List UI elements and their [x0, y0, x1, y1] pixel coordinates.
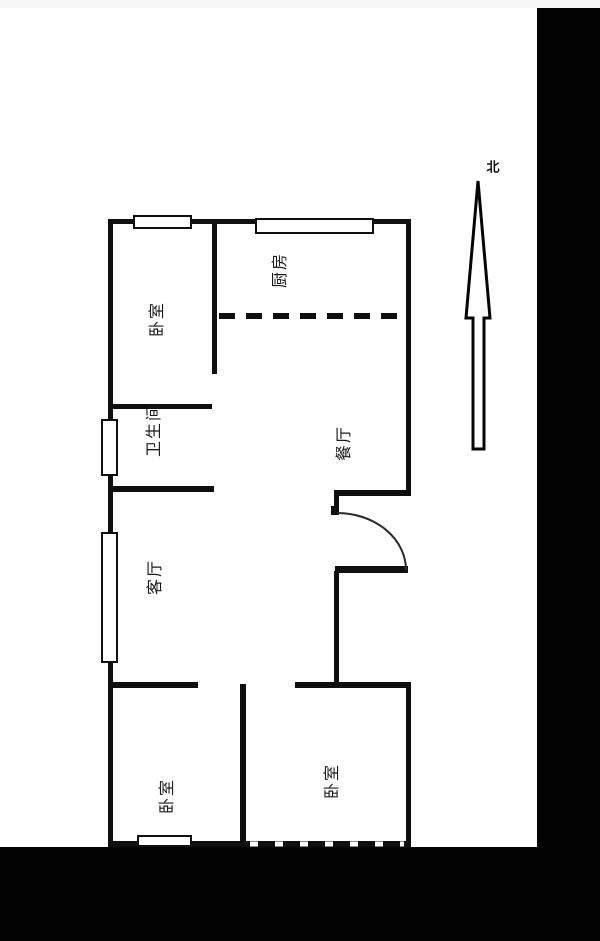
wall-outer-right-lower	[406, 685, 411, 847]
entry-door-leaf	[335, 566, 408, 573]
right-black-band	[537, 8, 600, 941]
top-edge-strip	[0, 0, 600, 8]
room-label-bedroom-bottom-left: 卧室	[153, 778, 177, 814]
wall-bottom-hall-right	[295, 682, 411, 688]
wall-entry-notch-top	[335, 490, 411, 496]
room-label-kitchen: 厨房	[266, 252, 290, 288]
door-hinge-nub	[331, 506, 336, 515]
window-kitchen	[255, 218, 374, 234]
compass-north-label: 北	[486, 157, 499, 176]
entry-door-swing-arc	[337, 513, 406, 570]
wall-outer-right-upper	[406, 219, 411, 495]
window-bathroom	[101, 419, 118, 476]
window-bedroom-top-left	[133, 215, 192, 229]
window-living-room	[101, 532, 118, 663]
north-arrow-icon	[466, 181, 490, 449]
wall-bedrooms-divider	[240, 684, 246, 845]
room-label-dining-room: 餐厅	[330, 425, 354, 461]
room-label-bedroom-top-left: 卧室	[143, 301, 167, 337]
plan-graphics	[0, 0, 600, 941]
wall-bottom-hall-left	[110, 682, 198, 688]
window-bedroom-bottom-left	[137, 835, 192, 847]
bottom-black-band	[0, 847, 600, 941]
floor-plan-image: 卧室 厨房 卫生间 餐厅 客厅 卧室 卧室 北	[0, 0, 600, 941]
wall-entry-left-lower	[334, 571, 339, 688]
room-label-bathroom: 卫生间	[140, 403, 164, 457]
wall-bedroom1-right	[212, 219, 217, 374]
room-label-living-room: 客厅	[141, 559, 165, 595]
room-label-bedroom-bottom-right: 卧室	[318, 763, 342, 799]
wall-bathroom-bottom	[110, 486, 214, 492]
